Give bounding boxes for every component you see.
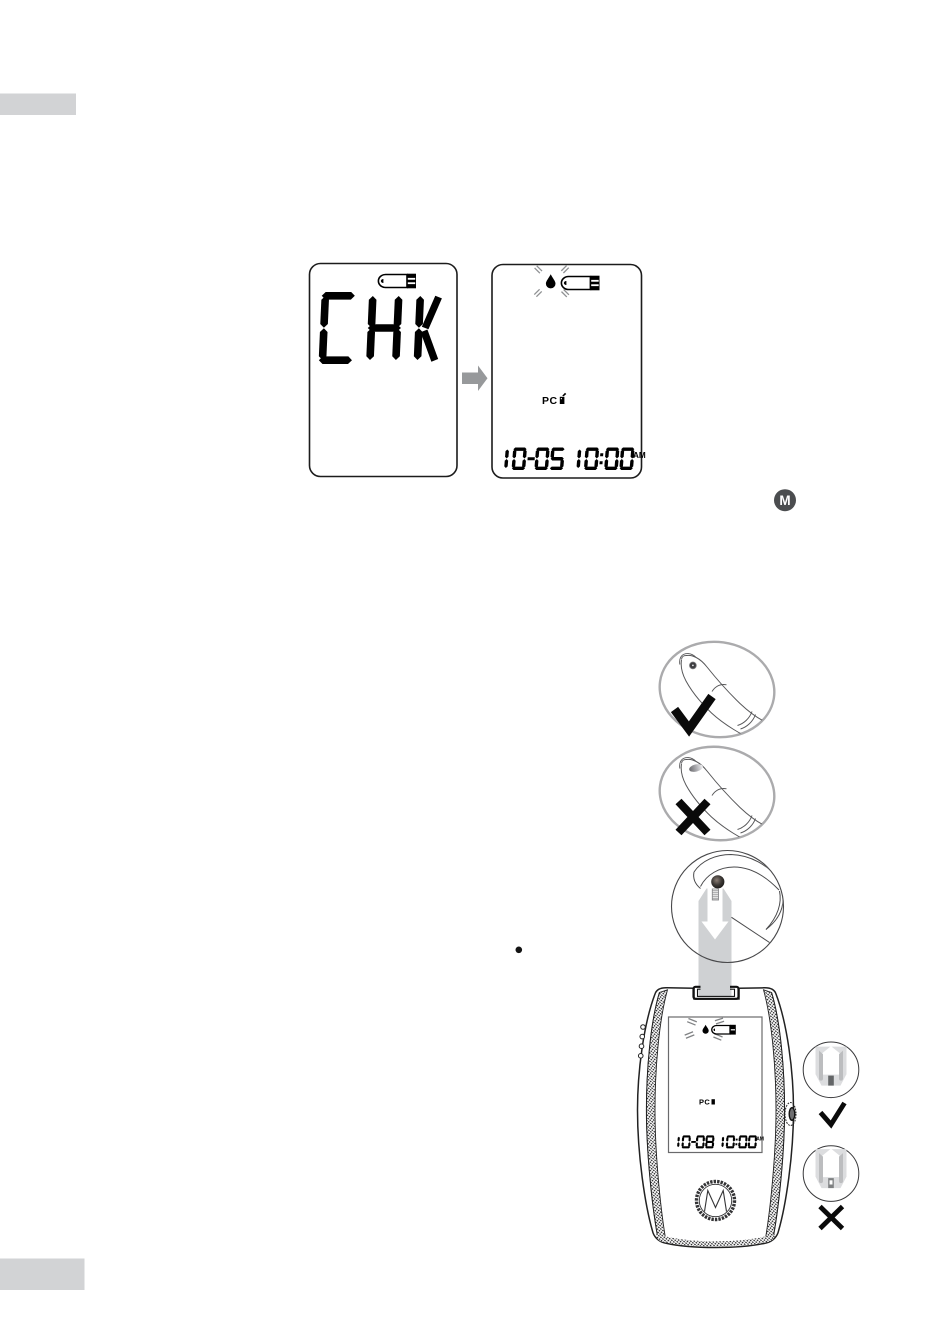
svg-text:PC: PC <box>542 395 558 407</box>
svg-text:M: M <box>779 493 790 508</box>
svg-text:AM: AM <box>756 1136 764 1142</box>
svg-text:PC: PC <box>699 1098 710 1107</box>
svg-text:AM: AM <box>633 451 646 460</box>
